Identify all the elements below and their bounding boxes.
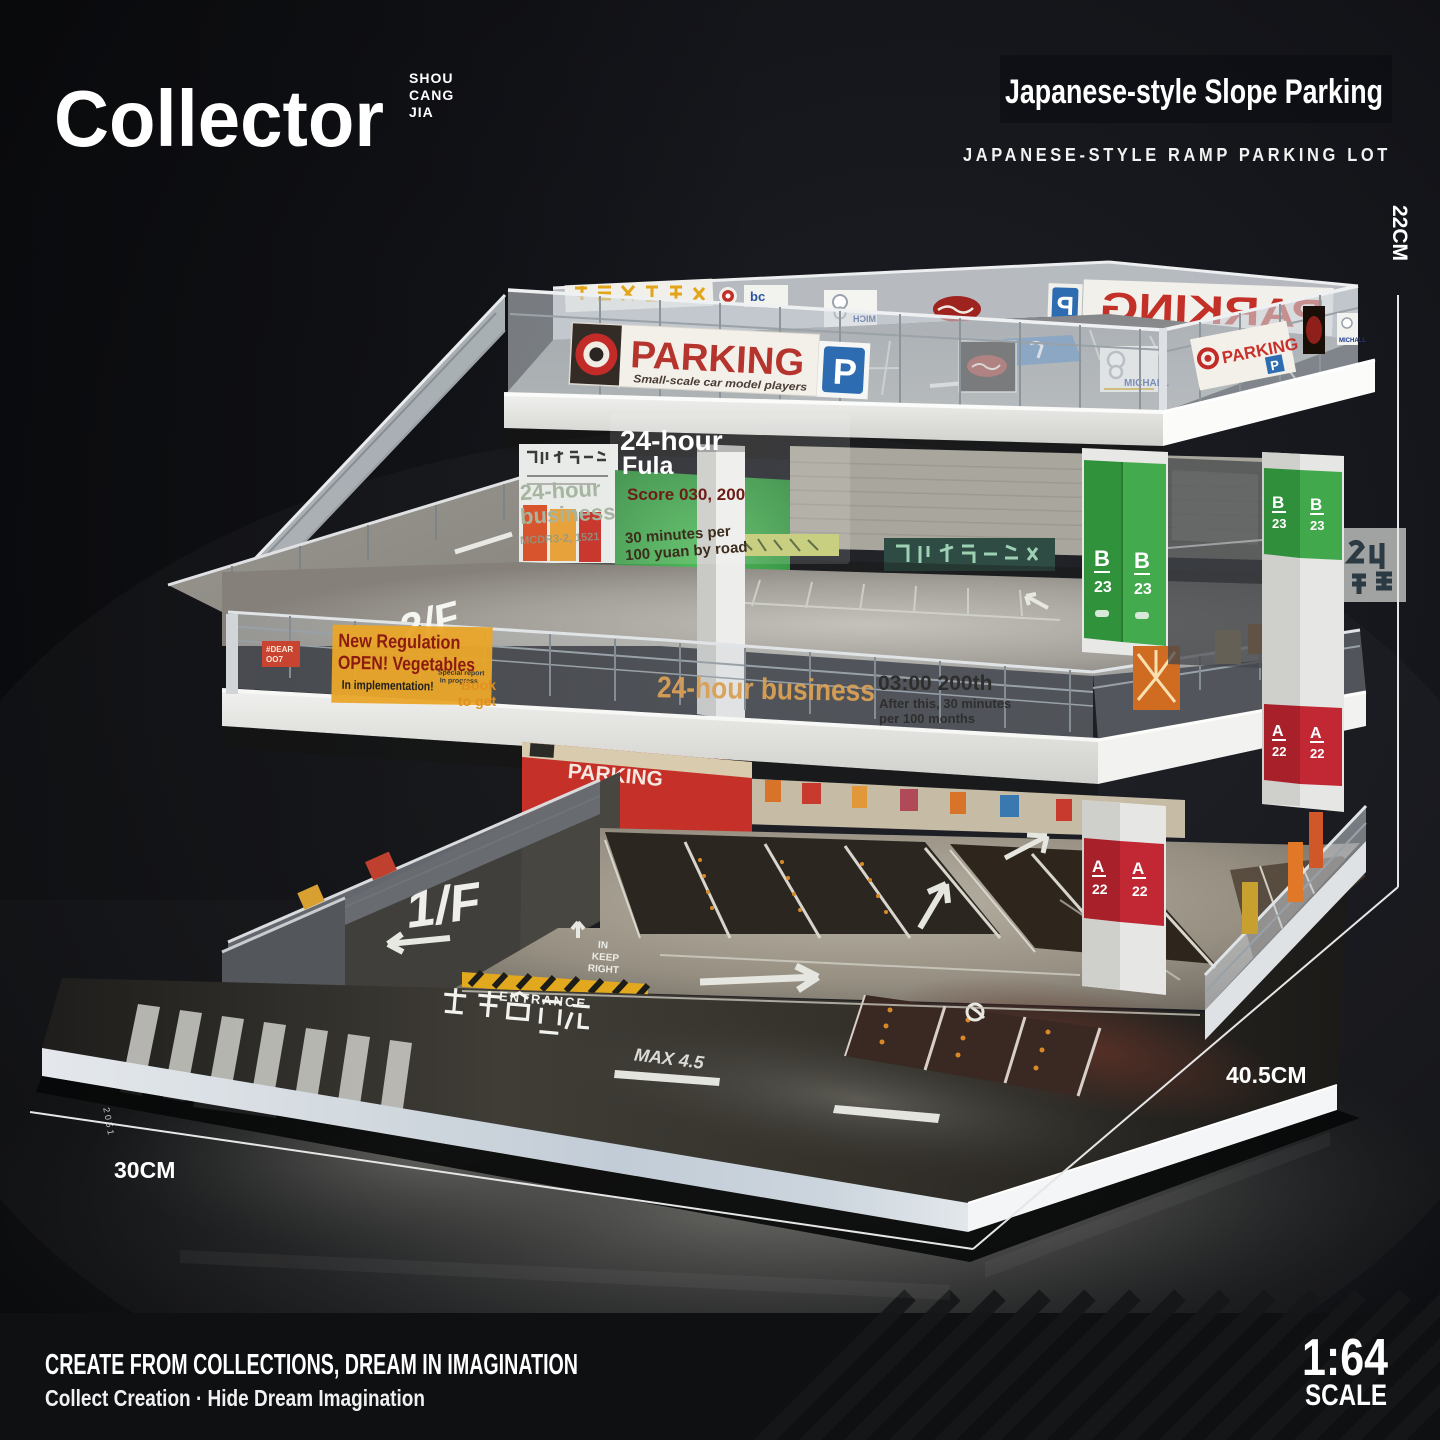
svg-text:CREATE FROM COLLECTIONS, DREAM: CREATE FROM COLLECTIONS, DREAM IN IMAGIN… <box>45 1349 578 1381</box>
svg-text:SHOU: SHOU <box>409 70 453 86</box>
svg-text:23: 23 <box>1094 579 1112 596</box>
svg-text:30CM: 30CM <box>114 1157 175 1183</box>
svg-text:40.5CM: 40.5CM <box>1226 1062 1307 1088</box>
svg-text:In implementation!: In implementation! <box>342 678 434 694</box>
svg-text:A: A <box>1310 725 1322 742</box>
svg-text:23: 23 <box>1134 581 1152 598</box>
svg-text:22: 22 <box>1132 883 1148 899</box>
svg-text:MICHALL: MICHALL <box>1339 338 1366 344</box>
svg-text:A: A <box>1132 859 1144 878</box>
svg-text:Fula: Fula <box>622 452 674 480</box>
svg-text:A: A <box>1272 723 1284 740</box>
svg-text:New Regulation: New Regulation <box>338 631 460 654</box>
svg-text:B: B <box>1134 548 1150 573</box>
svg-text:business: business <box>519 499 616 529</box>
svg-text:B: B <box>1310 495 1322 514</box>
svg-text:per 100 months: per 100 months <box>879 711 975 726</box>
svg-text:bc: bc <box>750 289 765 304</box>
svg-text:JAPANESE-STYLE RAMP PARKING LO: JAPANESE-STYLE RAMP PARKING LOT <box>963 145 1391 165</box>
svg-text:CANG: CANG <box>409 87 454 103</box>
svg-text:P: P <box>832 351 858 393</box>
svg-text:JIA: JIA <box>409 104 434 120</box>
svg-text:A: A <box>1092 857 1104 876</box>
svg-text:B: B <box>1272 493 1284 512</box>
svg-text:Book: Book <box>461 677 496 693</box>
svg-text:#DEAR: #DEAR <box>266 645 293 654</box>
svg-text:03:00 200th: 03:00 200th <box>878 672 992 695</box>
svg-text:After this, 30 minutes: After this, 30 minutes <box>879 696 1011 711</box>
svg-text:KEEP: KEEP <box>591 951 619 964</box>
svg-text:B: B <box>1094 546 1110 571</box>
svg-text:to get: to get <box>458 693 496 709</box>
svg-text:OO7: OO7 <box>266 655 283 664</box>
svg-text:22CM: 22CM <box>1388 205 1411 261</box>
svg-text:22: 22 <box>1092 881 1108 897</box>
svg-text:SCALE: SCALE <box>1305 1379 1387 1412</box>
svg-text:22: 22 <box>1272 744 1286 759</box>
svg-text:23: 23 <box>1310 518 1324 533</box>
svg-text:23: 23 <box>1272 516 1286 531</box>
svg-text:Japanese-style Slope Parking: Japanese-style Slope Parking <box>1005 73 1383 111</box>
svg-text:RIGHT: RIGHT <box>587 963 619 976</box>
svg-text:Score 030, 200: Score 030, 200 <box>627 485 745 504</box>
svg-text:Collector: Collector <box>54 74 384 163</box>
svg-text:24-hour business: 24-hour business <box>657 671 876 708</box>
svg-text:Collect Creation · Hide Dream: Collect Creation · Hide Dream Imaginatio… <box>45 1385 425 1411</box>
svg-text:IN: IN <box>598 940 609 952</box>
svg-text:22: 22 <box>1310 746 1324 761</box>
